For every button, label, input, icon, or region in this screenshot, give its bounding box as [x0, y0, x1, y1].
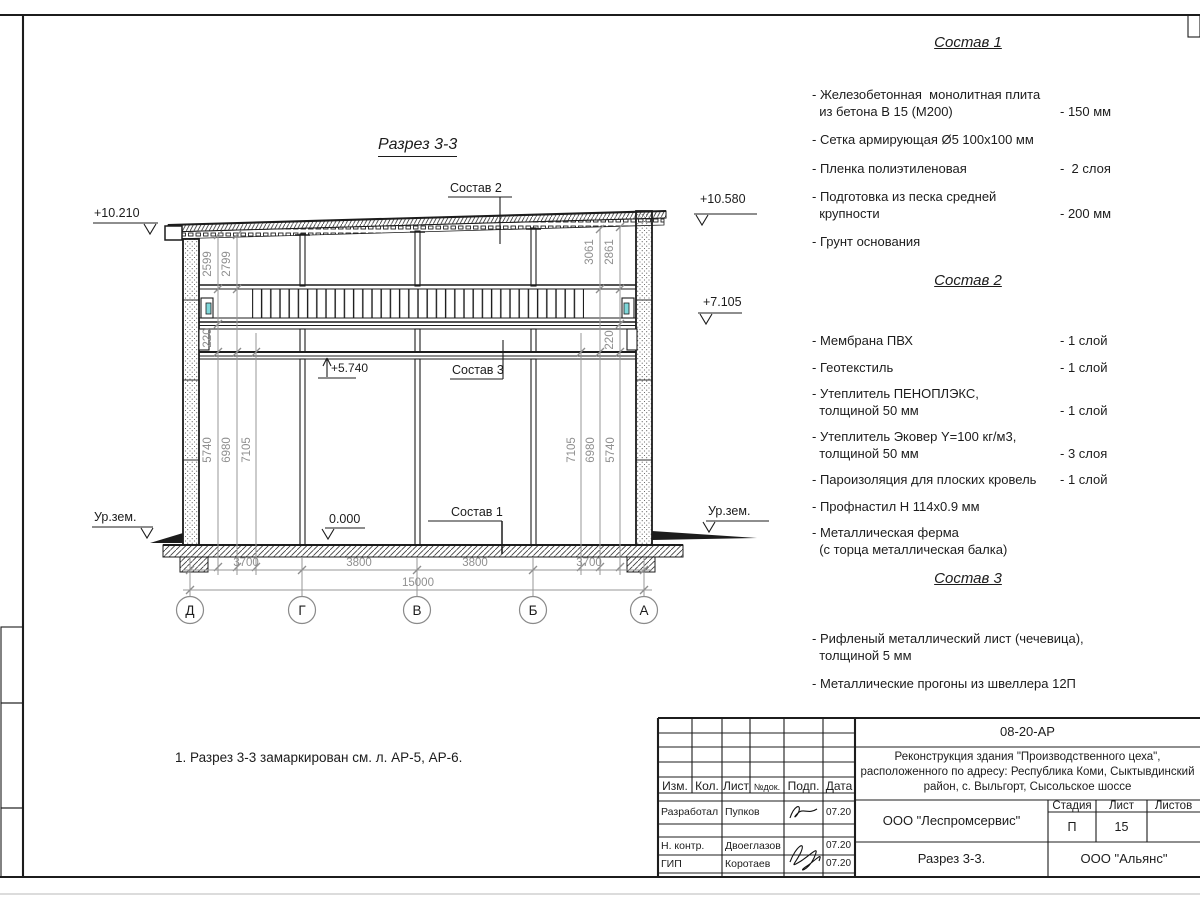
composition-list-3: Состав 3 - Рифленый металлический лист (… — [812, 570, 1124, 705]
axis-label-a: А — [639, 603, 648, 618]
stage-value: П — [1048, 820, 1096, 834]
item-value: - 200 мм — [1060, 206, 1124, 223]
list-item: - Утеплитель ПЕНОПЛЭКС, толщиной 50 мм- … — [812, 386, 1124, 419]
item-name: - Пленка полиэтиленовая — [812, 161, 967, 178]
ground-level-left: Ур.зем. — [94, 510, 136, 524]
contractor: ООО "Альянс" — [1048, 851, 1200, 866]
row-date: 07.20 — [826, 858, 851, 869]
doc-code: 08-20-АР — [855, 724, 1200, 739]
item-name: - Подготовка из песка средней крупности — [812, 189, 996, 222]
item-name: - Профнастил Н 114х0.9 мм — [812, 499, 980, 516]
row-date: 07.20 — [826, 840, 851, 851]
dim-left-220: 220 — [202, 328, 214, 347]
item-value: - 3 слоя — [1060, 446, 1124, 463]
sostav1-label: Состав 1 — [451, 505, 503, 519]
cyan-detail-left — [206, 303, 211, 314]
item-name: - Металлическая ферма (с торца металличе… — [812, 525, 1007, 558]
sostav2-label: Состав 2 — [450, 181, 502, 195]
elevation-mid-right: +7.105 — [703, 295, 742, 309]
list-item: - Металлические прогоны из швеллера 12П — [812, 676, 1124, 693]
composition-list-2: Состав 2 - Мембрана ПВХ- 1 слой - Геотек… — [812, 272, 1124, 568]
signatures — [790, 807, 820, 870]
col-ndok: №док. — [750, 782, 784, 792]
axis-label-d: Д — [185, 603, 194, 618]
item-name: - Грунт основания — [812, 234, 920, 251]
item-name: - Железобетонная монолитная плита из бет… — [812, 87, 1040, 120]
roof-posts — [295, 228, 541, 286]
list-item: - Подготовка из песка средней крупности-… — [812, 189, 1124, 222]
dim-right-5740: 5740 — [605, 437, 617, 463]
dim-span-4: 3700 — [576, 557, 602, 569]
truss-support-left — [201, 298, 213, 318]
cyan-detail-right — [624, 303, 629, 314]
axis-bubbles: Д Г В Б А — [177, 597, 658, 624]
col-list: Лист — [722, 779, 750, 793]
item-value: - 1 слой — [1060, 360, 1124, 377]
upper-columns — [199, 329, 637, 352]
sostav3-label: Состав 3 — [452, 363, 504, 377]
drawing-note: 1. Разрез 3-3 замаркирован см. л. АР-5, … — [175, 750, 462, 765]
sheet-label: Лист — [1096, 800, 1147, 812]
dim-left-6980: 6980 — [221, 437, 233, 463]
list-1-title: Состав 1 — [812, 34, 1124, 51]
item-name: - Металлические прогоны из швеллера 12П — [812, 676, 1076, 693]
sheets-label: Листов — [1147, 800, 1200, 812]
list-2-title: Состав 2 — [812, 272, 1124, 289]
roof-left-cap — [165, 226, 182, 240]
item-name: - Геотекстиль — [812, 360, 893, 377]
grade-wedge-left — [150, 533, 183, 543]
dim-span-3: 3800 — [462, 557, 488, 569]
right-wall — [636, 211, 652, 545]
col-izm: Изм. — [658, 779, 692, 793]
axis-label-g: Г — [298, 603, 306, 618]
item-name: - Пароизоляция для плоских кровель — [812, 472, 1036, 489]
item-value: - 1 слой — [1060, 403, 1124, 420]
list-item: - Рифленый металлический лист (чечевица)… — [812, 631, 1124, 664]
elevation-top-left: +10.210 — [94, 206, 140, 220]
dim-right-2861: 2861 — [604, 239, 616, 265]
ground-level-right: Ур.зем. — [708, 504, 750, 518]
dim-span-2: 3800 — [346, 557, 372, 569]
sheet-name: Разрез 3-3. — [855, 851, 1048, 866]
row-name: Коротаев — [725, 858, 770, 870]
dim-left-2799: 2799 — [221, 251, 233, 277]
section-title: Разрез 3-3 — [378, 136, 457, 157]
item-name: - Утеплитель Эковер Y=100 кг/м3, толщино… — [812, 429, 1016, 462]
dim-right-7105: 7105 — [566, 437, 578, 463]
item-value: - 2 слоя — [1060, 161, 1124, 178]
list-item: - Мембрана ПВХ- 1 слой — [812, 333, 1124, 350]
item-name: - Рифленый металлический лист (чечевица)… — [812, 631, 1084, 664]
list-item: - Грунт основания — [812, 234, 1124, 251]
list-item: - Железобетонная монолитная плита из бет… — [812, 87, 1124, 120]
sheet-value: 15 — [1096, 820, 1147, 834]
dim-right-220: 220 — [604, 330, 616, 349]
grade-wedge-right — [652, 531, 757, 540]
row-role: Н. контр. — [661, 840, 704, 852]
item-value: - 150 мм — [1060, 104, 1124, 121]
list-item: - Геотекстиль- 1 слой — [812, 360, 1124, 377]
row-role: ГИП — [661, 858, 682, 870]
row-date: 07.20 — [826, 807, 851, 818]
list-item: - Металлическая ферма (с торца металличе… — [812, 525, 1124, 558]
elevation-top-right: +10.580 — [700, 192, 746, 206]
truss-support-right — [622, 298, 634, 318]
dim-left-2599: 2599 — [202, 251, 214, 277]
col-kol: Кол. — [692, 779, 722, 793]
stage-label: Стадия — [1048, 800, 1096, 812]
list-item: - Сетка армирующая Ø5 100х100 мм — [812, 132, 1124, 149]
signature-2 — [790, 846, 820, 870]
item-name: - Сетка армирующая Ø5 100х100 мм — [812, 132, 1034, 149]
col-data: Дата — [823, 779, 855, 793]
mezzanine-floor — [199, 352, 636, 359]
item-value: - 1 слой — [1060, 333, 1124, 350]
axis-label-b: Б — [529, 603, 538, 618]
row-name: Двоеглазов — [725, 840, 781, 852]
dim-total: 15000 — [402, 577, 434, 589]
elevation-floor: 0.000 — [329, 512, 360, 526]
metal-truss — [199, 285, 636, 329]
list-item: - Пленка полиэтиленовая- 2 слоя — [812, 161, 1124, 178]
elevation-mezzanine: +5.740 — [331, 361, 368, 375]
row-role: Разработал — [661, 806, 718, 818]
list-3-title: Состав 3 — [812, 570, 1124, 587]
list-item: - Пароизоляция для плоских кровель- 1 сл… — [812, 472, 1124, 489]
list-item: - Утеплитель Эковер Y=100 кг/м3, толщино… — [812, 429, 1124, 462]
dim-left-7105: 7105 — [241, 437, 253, 463]
drawing-sheet: 5740 6980 7105 7105 6980 5740 220 220 25… — [0, 0, 1200, 900]
item-name: - Утеплитель ПЕНОПЛЭКС, толщиной 50 мм — [812, 386, 979, 419]
left-wall — [183, 239, 199, 545]
row-name: Пупков — [725, 806, 760, 818]
dim-left-5740: 5740 — [202, 437, 214, 463]
list-item: - Профнастил Н 114х0.9 мм — [812, 499, 1124, 516]
project-name: Реконструкция здания "Производственного … — [857, 750, 1198, 796]
design-org: ООО "Леспромсервис" — [855, 813, 1048, 828]
item-value: - 1 слой — [1060, 472, 1124, 489]
dim-right-6980: 6980 — [585, 437, 597, 463]
dim-span-1: 3700 — [233, 557, 259, 569]
axis-label-v: В — [412, 603, 421, 618]
signature-1 — [790, 807, 817, 818]
item-name: - Мембрана ПВХ — [812, 333, 913, 350]
dim-right-3061: 3061 — [584, 239, 596, 265]
composition-list-1: Состав 1 - Железобетонная монолитная пли… — [812, 34, 1124, 263]
col-podp: Подп. — [784, 779, 823, 793]
